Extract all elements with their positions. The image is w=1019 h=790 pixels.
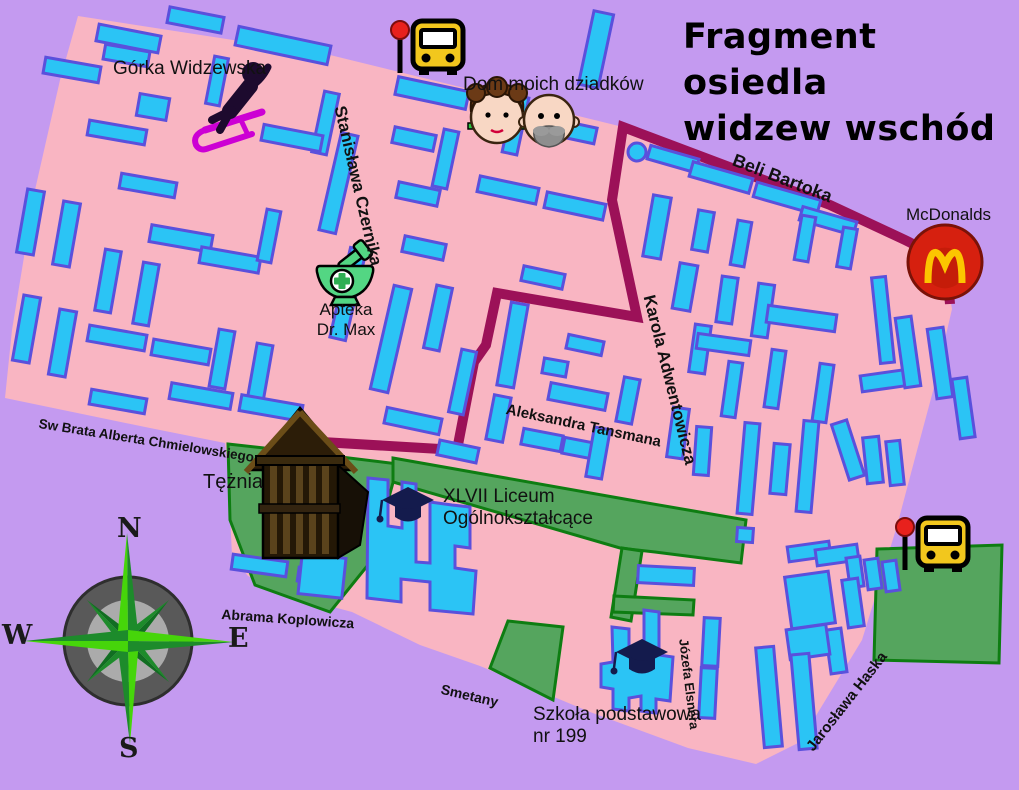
- mcdonalds-m-icon: [908, 225, 982, 299]
- building: [886, 440, 905, 485]
- building: [882, 560, 900, 592]
- bus-stop-icon: [391, 21, 463, 75]
- building: [863, 436, 884, 483]
- building: [136, 94, 169, 121]
- building: [699, 668, 718, 719]
- map-dot: [628, 143, 646, 161]
- building: [864, 558, 882, 590]
- building: [770, 443, 790, 494]
- building: [298, 554, 346, 598]
- bus-stop-icon: [896, 518, 968, 572]
- building: [737, 527, 754, 542]
- building: [693, 427, 711, 476]
- building: [542, 358, 568, 377]
- building: [702, 618, 720, 667]
- building: [785, 571, 836, 629]
- building: [638, 566, 695, 586]
- estate-map: Fragment osiedla widzew wschód Górka Wid…: [0, 0, 1019, 790]
- grandma-face-icon: [467, 77, 527, 143]
- map-canvas: [0, 0, 1019, 790]
